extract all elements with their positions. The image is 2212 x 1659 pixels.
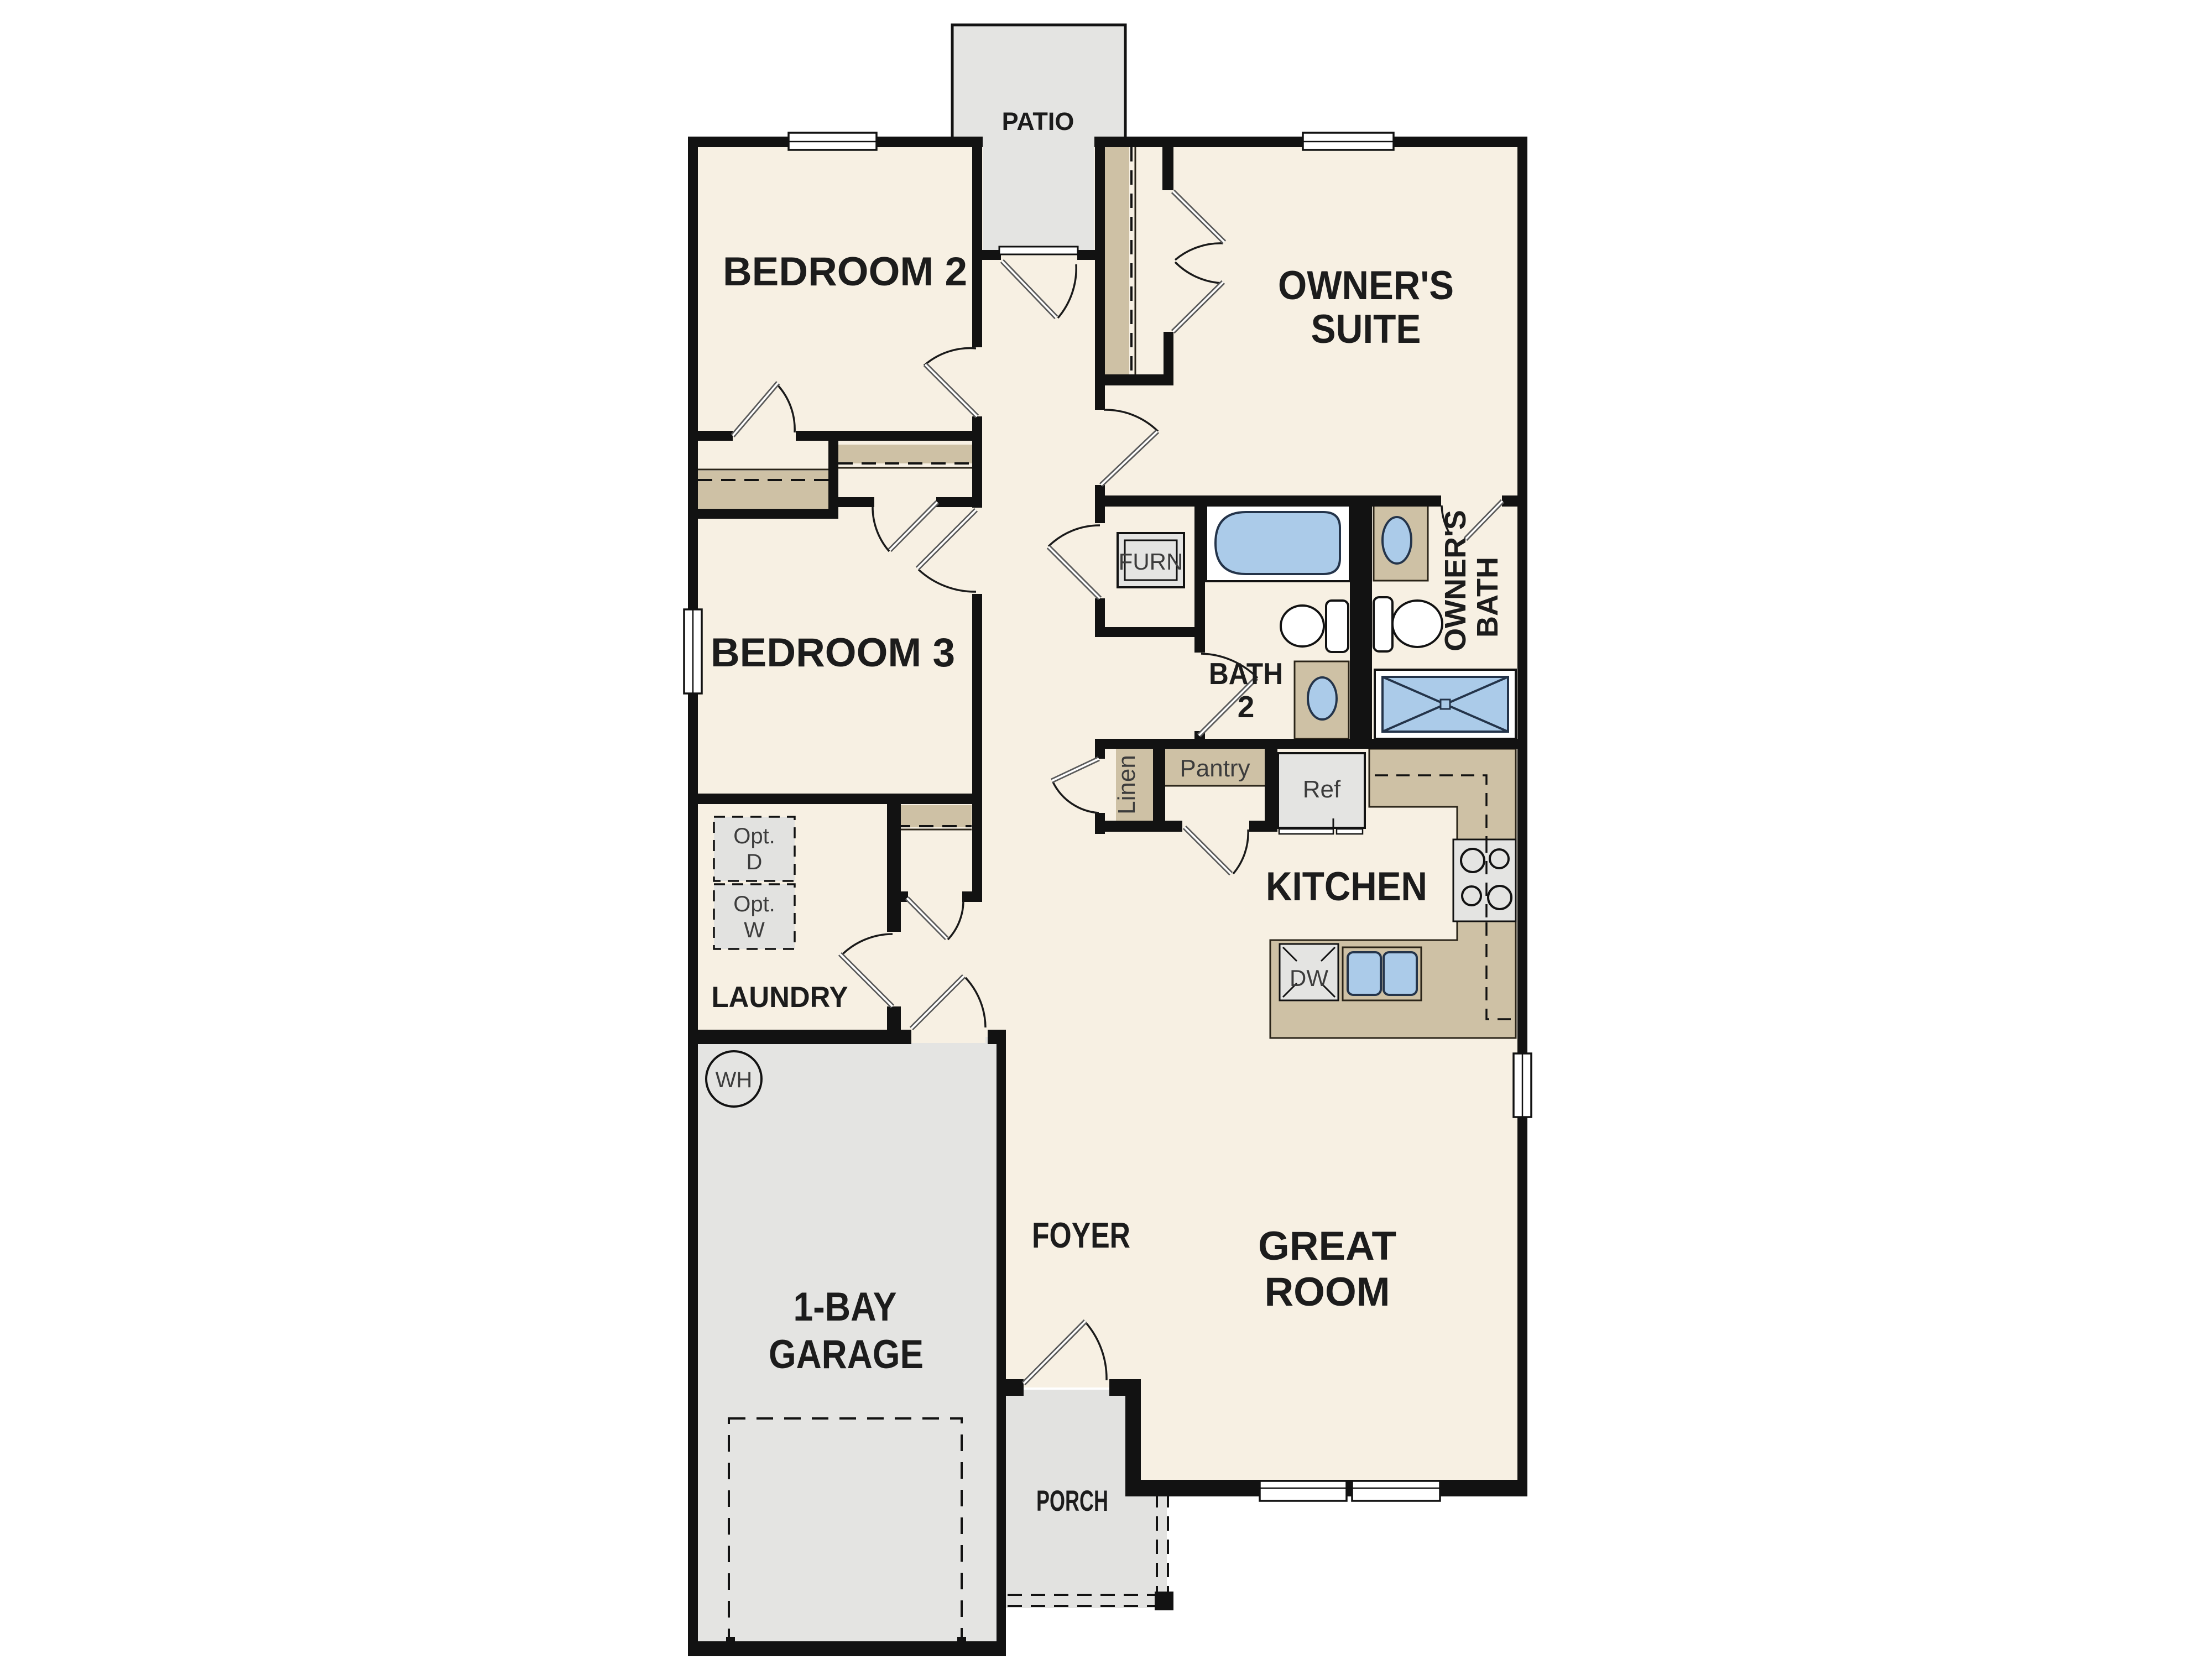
svg-text:DW: DW [1290,965,1328,991]
svg-text:WH: WH [716,1068,753,1092]
svg-text:GARAGE: GARAGE [769,1332,924,1377]
svg-text:FOYER: FOYER [1032,1215,1130,1255]
svg-text:Linen: Linen [1113,755,1140,815]
svg-text:ROOM: ROOM [1264,1270,1390,1314]
svg-text:2: 2 [1238,690,1255,724]
svg-text:OWNER'S: OWNER'S [1278,263,1454,308]
svg-text:Opt.: Opt. [733,824,775,848]
svg-text:PATIO: PATIO [1002,107,1074,135]
svg-text:SUITE: SUITE [1311,307,1421,352]
svg-text:KITCHEN: KITCHEN [1266,864,1427,909]
svg-text:FURN: FURN [1119,549,1183,575]
svg-text:W: W [744,918,765,942]
svg-text:OWNER'S: OWNER'S [1439,510,1472,651]
svg-text:BEDROOM 2: BEDROOM 2 [723,249,967,294]
svg-text:BEDROOM 3: BEDROOM 3 [711,630,955,675]
svg-text:BATH: BATH [1471,557,1504,638]
svg-text:BATH: BATH [1209,656,1283,691]
svg-text:PORCH: PORCH [1036,1485,1108,1517]
svg-text:Pantry: Pantry [1180,755,1250,782]
svg-text:Ref: Ref [1303,776,1341,803]
svg-text:D: D [747,850,763,874]
svg-text:Opt.: Opt. [733,892,775,916]
svg-text:GREAT: GREAT [1258,1224,1396,1269]
svg-text:LAUNDRY: LAUNDRY [712,981,848,1014]
svg-text:1-BAY: 1-BAY [794,1285,897,1329]
